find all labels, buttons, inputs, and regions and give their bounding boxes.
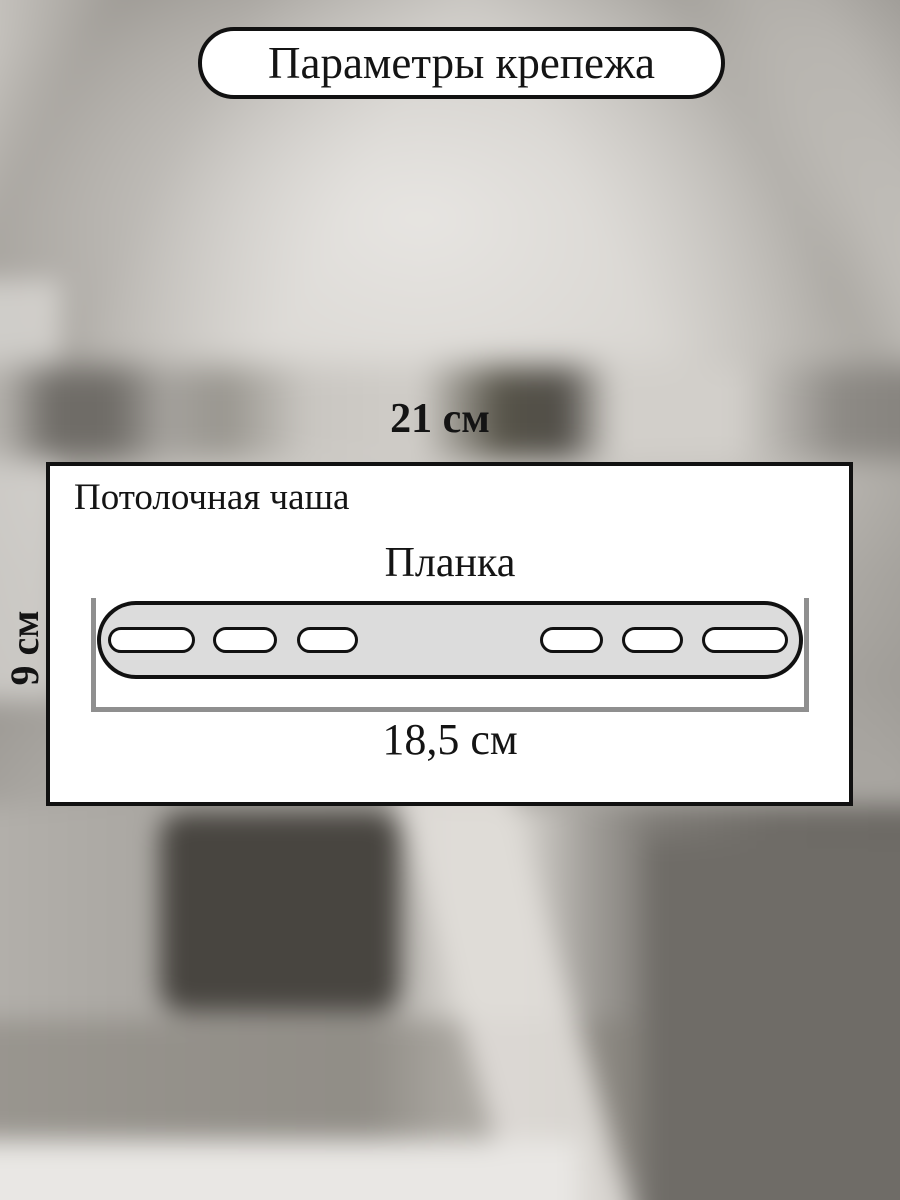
plate-slot <box>108 627 195 653</box>
ceiling-cup-label: Потолочная чаша <box>74 476 349 520</box>
plate-slot <box>213 627 277 653</box>
background-table <box>160 812 400 1012</box>
plate-length-label: 18,5 см <box>97 716 803 764</box>
box-width-dimension-label: 21 см <box>290 396 590 442</box>
plate-label: Планка <box>97 540 803 586</box>
diagram-panel: Потолочная чаша Планка 18,5 см <box>46 462 853 806</box>
plate-slot <box>702 627 788 653</box>
box-height-dimension-label: 9 см <box>2 573 48 723</box>
infographic-mount-parameters: Параметры крепежа 21 см 9 см Потолочная … <box>0 0 900 1200</box>
plate-slot <box>622 627 683 653</box>
plate-slot <box>297 627 358 653</box>
mounting-plate <box>97 601 803 679</box>
plate-slot <box>540 627 603 653</box>
page-title: Параметры крепежа <box>268 41 655 86</box>
title-pill: Параметры крепежа <box>198 27 725 99</box>
background-sofa <box>645 840 900 1200</box>
background-bottom-highlight <box>0 1140 580 1200</box>
